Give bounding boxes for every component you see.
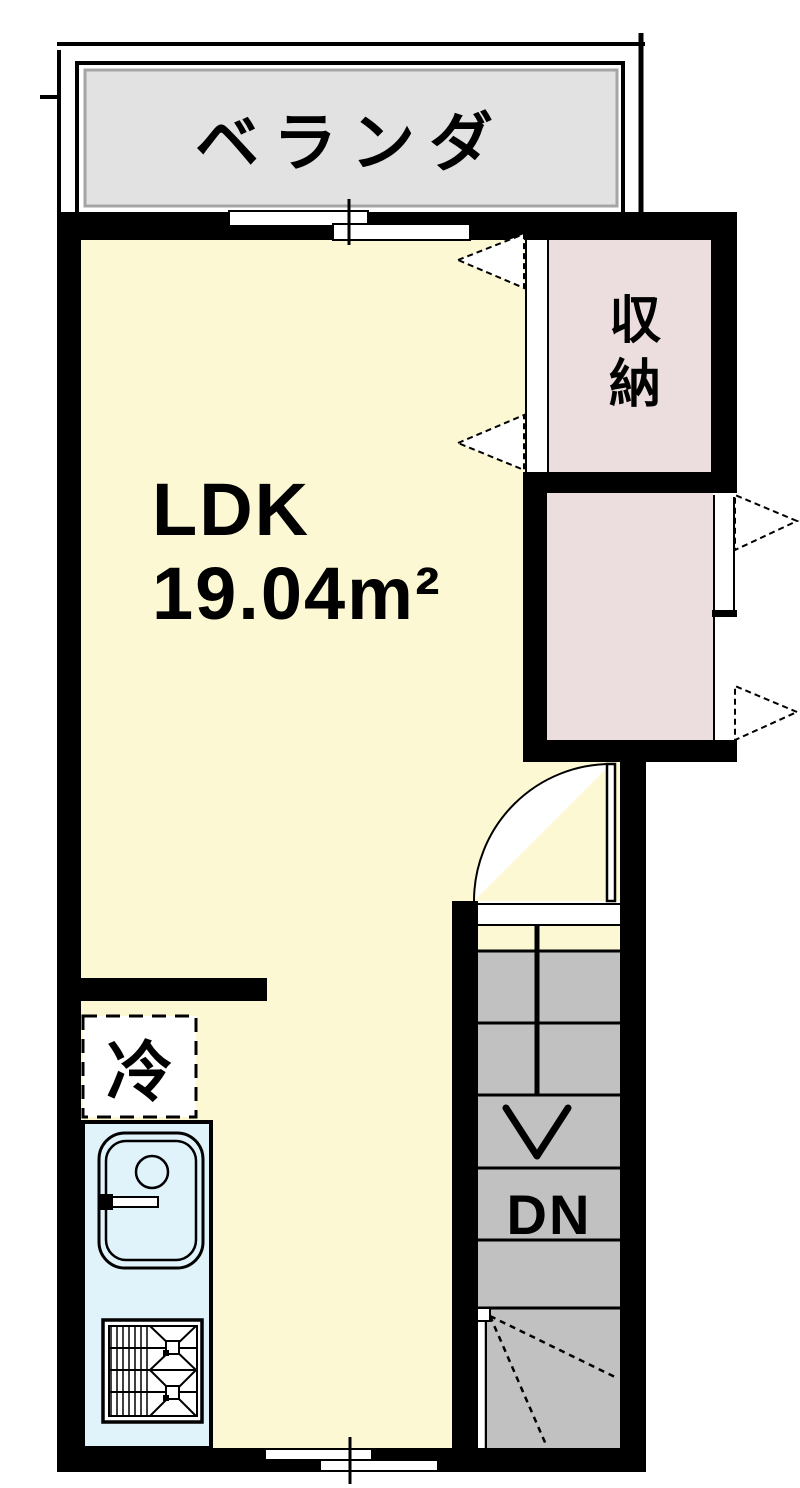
ldk-name: LDK bbox=[152, 468, 442, 552]
stove-icon bbox=[103, 1320, 202, 1422]
closet-bifold-door bbox=[712, 495, 797, 740]
refrigerator-label: 冷 bbox=[83, 1016, 196, 1117]
storage-label: 収納 bbox=[548, 240, 712, 472]
ldk-label: LDK 19.04m² bbox=[152, 468, 442, 637]
ldk-area: 19.04m² bbox=[152, 552, 442, 636]
floor-plan-drawing bbox=[0, 0, 800, 1488]
kitchen-unit bbox=[83, 1122, 211, 1448]
veranda-label: ベランダ bbox=[85, 70, 617, 206]
floor-plan: ベランダ 収納 LDK 19.04m² 冷 DN bbox=[0, 0, 800, 1488]
stairs-down-label: DN bbox=[478, 1176, 620, 1252]
